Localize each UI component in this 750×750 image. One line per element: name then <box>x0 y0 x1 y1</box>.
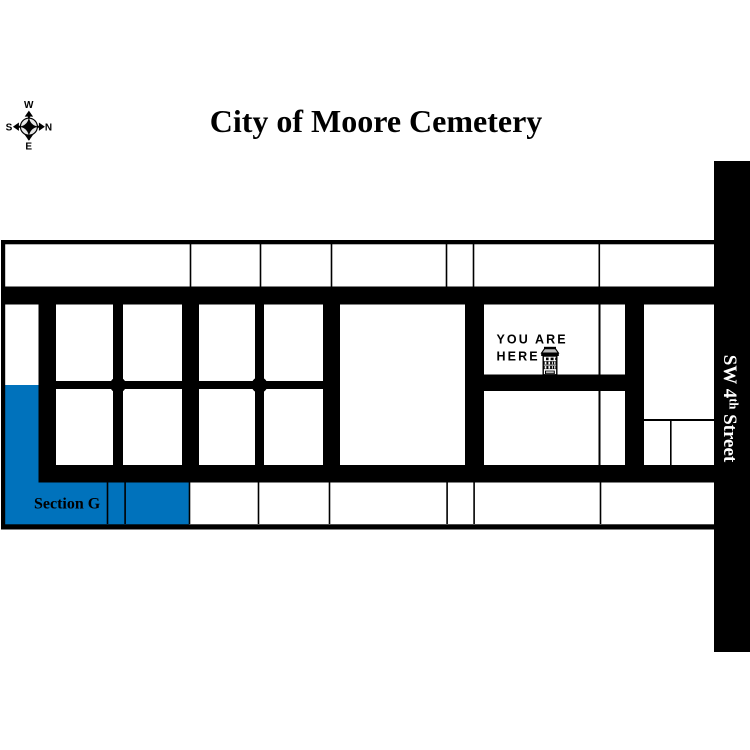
svg-text:HERE: HERE <box>497 349 540 363</box>
svg-text:N: N <box>45 122 52 133</box>
svg-text:City of Moore Cemetery: City of Moore Cemetery <box>210 103 543 139</box>
svg-text:SW 4th Street: SW 4th Street <box>719 355 741 463</box>
svg-text:Section G: Section G <box>34 496 101 513</box>
svg-text:S: S <box>6 122 13 133</box>
svg-text:W: W <box>24 100 34 111</box>
svg-text:E: E <box>25 141 32 152</box>
svg-text:YOU ARE: YOU ARE <box>497 333 568 347</box>
